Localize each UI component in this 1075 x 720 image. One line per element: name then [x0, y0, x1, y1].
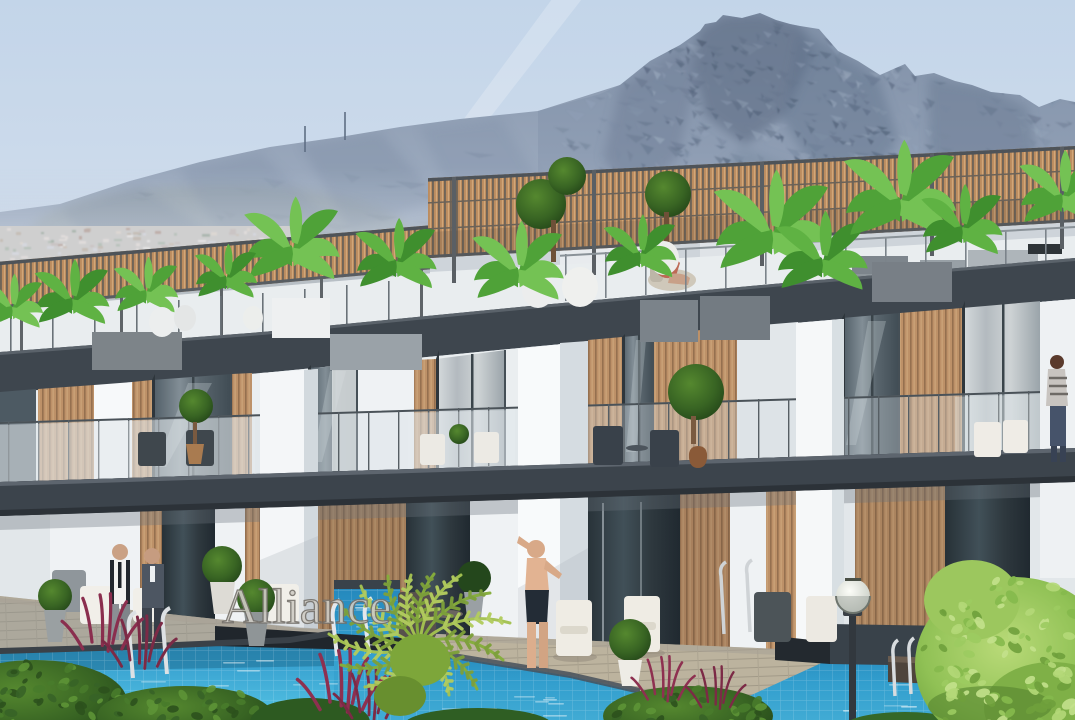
svg-text:Alliance: Alliance: [222, 578, 391, 634]
